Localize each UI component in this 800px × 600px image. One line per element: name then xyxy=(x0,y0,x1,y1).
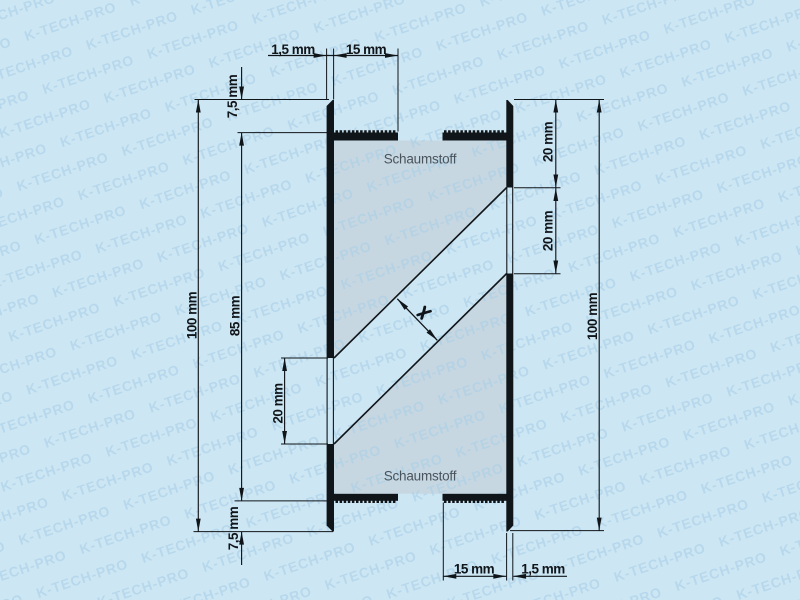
svg-text:1,5 mm: 1,5 mm xyxy=(521,561,565,576)
svg-text:20 mm: 20 mm xyxy=(271,383,286,424)
svg-text:1,5 mm: 1,5 mm xyxy=(271,42,315,57)
svg-text:Schaumstoff: Schaumstoff xyxy=(384,469,457,484)
svg-text:85 mm: 85 mm xyxy=(228,295,243,336)
svg-text:7,5 mm: 7,5 mm xyxy=(225,74,240,118)
svg-text:15 mm: 15 mm xyxy=(346,42,387,57)
svg-text:7,5 mm: 7,5 mm xyxy=(226,506,241,550)
svg-text:100 mm: 100 mm xyxy=(585,292,600,340)
svg-text:15 mm: 15 mm xyxy=(454,561,495,576)
svg-text:Schaumstoff: Schaumstoff xyxy=(384,152,457,167)
svg-text:20 mm: 20 mm xyxy=(541,210,556,251)
svg-text:100 mm: 100 mm xyxy=(184,291,199,339)
svg-text:20 mm: 20 mm xyxy=(541,121,556,162)
